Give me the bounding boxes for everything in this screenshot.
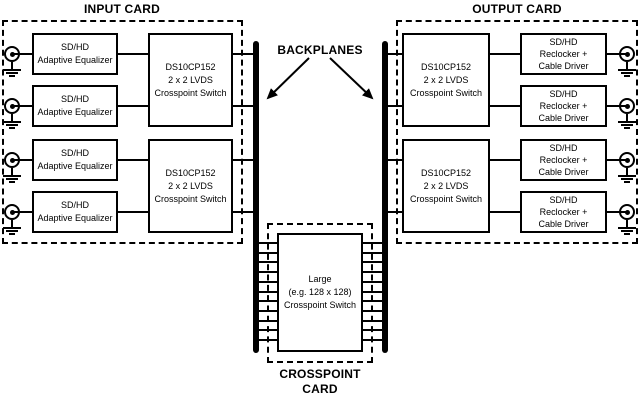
block-label-line: Adaptive Equalizer	[37, 106, 112, 119]
input-card-title: INPUT CARD	[84, 2, 160, 17]
bus-wire	[258, 339, 279, 341]
ground-bar	[621, 124, 633, 126]
bus-wire	[361, 261, 384, 263]
output-crosspoint-switch-block-1: DS10CP152 2 x 2 LVDS Crosspoint Switch	[402, 33, 490, 127]
wire	[18, 211, 34, 213]
ground-bar	[6, 178, 18, 180]
wire	[488, 53, 522, 55]
block-label-line: Crosspoint Switch	[154, 87, 226, 100]
wire	[605, 53, 620, 55]
block-label-line: Cable Driver	[538, 60, 588, 72]
wire	[18, 159, 34, 161]
ground-bar	[624, 75, 630, 77]
bus-wire	[361, 252, 384, 254]
backplanes-arrows	[252, 55, 392, 109]
ground-bar	[6, 230, 18, 232]
reclocker-cable-driver-block-3: SD/HD Reclocker + Cable Driver	[520, 139, 607, 181]
ground-stem	[626, 220, 628, 227]
block-label-line: Crosspoint Switch	[410, 193, 482, 206]
ground-icon	[618, 227, 636, 229]
ground-stem	[11, 168, 13, 175]
reclocker-cable-driver-block-4: SD/HD Reclocker + Cable Driver	[520, 191, 607, 233]
wire	[385, 105, 404, 107]
block-label-line: Adaptive Equalizer	[37, 160, 112, 173]
ground-icon	[3, 227, 21, 229]
bnc-jack-icon	[619, 152, 635, 168]
bus-wire	[258, 329, 279, 331]
wire	[116, 53, 150, 55]
block-label-line: SD/HD	[61, 41, 89, 54]
bus-wire	[258, 281, 279, 283]
block-label-line: Adaptive Equalizer	[37, 212, 112, 225]
ground-icon	[618, 121, 636, 123]
wire	[116, 211, 150, 213]
block-label-line: SD/HD	[61, 147, 89, 160]
wire	[385, 53, 404, 55]
block-label-line: 2 x 2 LVDS	[168, 74, 213, 87]
ground-icon	[618, 175, 636, 177]
ground-bar	[624, 233, 630, 235]
bus-wire	[361, 242, 384, 244]
crosspoint-card-label-line: CROSSPOINT	[279, 367, 360, 382]
ground-icon	[3, 69, 21, 71]
bus-wire	[258, 261, 279, 263]
crosspoint-card-label: CROSSPOINT CARD	[279, 367, 360, 397]
block-label-line: 2 x 2 LVDS	[424, 180, 469, 193]
reclocker-cable-driver-block-2: SD/HD Reclocker + Cable Driver	[520, 85, 607, 127]
block-label-line: SD/HD	[549, 88, 577, 100]
adaptive-equalizer-block-2: SD/HD Adaptive Equalizer	[32, 85, 118, 127]
bus-wire	[361, 271, 384, 273]
bus-wire	[258, 252, 279, 254]
block-label-line: SD/HD	[549, 142, 577, 154]
large-crosspoint-switch-block: Large (e.g. 128 x 128) Crosspoint Switch	[277, 233, 363, 352]
ground-icon	[3, 175, 21, 177]
ground-bar	[9, 181, 15, 183]
ground-bar	[9, 75, 15, 77]
block-label-line: Reclocker +	[540, 100, 588, 112]
block-label-line: DS10CP152	[421, 61, 471, 74]
bnc-input-connector-2	[4, 98, 20, 130]
adaptive-equalizer-block-4: SD/HD Adaptive Equalizer	[32, 191, 118, 233]
ground-bar	[6, 72, 18, 74]
ground-bar	[6, 124, 18, 126]
wire	[605, 211, 620, 213]
ground-stem	[626, 62, 628, 69]
input-crosspoint-switch-block-2: DS10CP152 2 x 2 LVDS Crosspoint Switch	[148, 139, 233, 233]
bnc-output-connector-4	[619, 204, 635, 236]
bus-wire	[361, 300, 384, 302]
bnc-input-connector-3	[4, 152, 20, 184]
wire	[488, 211, 522, 213]
bnc-input-connector-1	[4, 46, 20, 78]
bus-wire	[258, 310, 279, 312]
bus-wire	[361, 291, 384, 293]
bnc-output-connector-1	[619, 46, 635, 78]
block-label-line: SD/HD	[61, 93, 89, 106]
block-label-line: Large	[308, 273, 331, 286]
block-label-line: Reclocker +	[540, 154, 588, 166]
block-label-line: Crosspoint Switch	[410, 87, 482, 100]
bus-wire	[361, 320, 384, 322]
bnc-output-connector-2	[619, 98, 635, 130]
wire	[605, 105, 620, 107]
wire	[116, 105, 150, 107]
output-card-title: OUTPUT CARD	[472, 2, 562, 17]
bus-wire	[258, 320, 279, 322]
block-label-line: SD/HD	[61, 199, 89, 212]
block-label-line: Adaptive Equalizer	[37, 54, 112, 67]
bus-wire	[361, 329, 384, 331]
reclocker-cable-driver-block-1: SD/HD Reclocker + Cable Driver	[520, 33, 607, 75]
bus-wire	[258, 242, 279, 244]
block-label-line: 2 x 2 LVDS	[424, 74, 469, 87]
ground-bar	[621, 178, 633, 180]
block-label-line: Reclocker +	[540, 206, 588, 218]
ground-bar	[624, 181, 630, 183]
wire	[605, 159, 620, 161]
bus-wire	[361, 339, 384, 341]
arrow-to-right-backplane	[330, 58, 372, 98]
ground-bar	[9, 127, 15, 129]
ground-stem	[626, 168, 628, 175]
adaptive-equalizer-block-1: SD/HD Adaptive Equalizer	[32, 33, 118, 75]
block-label-line: 2 x 2 LVDS	[168, 180, 213, 193]
arrow-to-left-backplane	[268, 58, 309, 98]
ground-stem	[11, 62, 13, 69]
adaptive-equalizer-block-3: SD/HD Adaptive Equalizer	[32, 139, 118, 181]
block-diagram: INPUT CARD SD/HD Adaptive Equalizer SD/H…	[0, 0, 640, 402]
ground-bar	[9, 233, 15, 235]
wire	[385, 211, 404, 213]
wire	[488, 105, 522, 107]
block-label-line: SD/HD	[549, 194, 577, 206]
block-label-line: Cable Driver	[538, 218, 588, 230]
block-label-line: Cable Driver	[538, 112, 588, 124]
ground-bar	[621, 72, 633, 74]
block-label-line: Cable Driver	[538, 166, 588, 178]
ground-stem	[11, 220, 13, 227]
bus-wire	[361, 310, 384, 312]
bus-wire	[258, 300, 279, 302]
block-label-line: DS10CP152	[165, 61, 215, 74]
ground-stem	[11, 114, 13, 121]
bnc-input-connector-4	[4, 204, 20, 236]
bnc-jack-icon	[619, 204, 635, 220]
bnc-jack-icon	[619, 46, 635, 62]
ground-icon	[618, 69, 636, 71]
bnc-output-connector-3	[619, 152, 635, 184]
wire	[488, 159, 522, 161]
wire	[18, 105, 34, 107]
input-crosspoint-switch-block-1: DS10CP152 2 x 2 LVDS Crosspoint Switch	[148, 33, 233, 127]
block-label-line: Reclocker +	[540, 48, 588, 60]
block-label-line: DS10CP152	[165, 167, 215, 180]
bus-wire	[361, 281, 384, 283]
output-crosspoint-switch-block-2: DS10CP152 2 x 2 LVDS Crosspoint Switch	[402, 139, 490, 233]
ground-stem	[626, 114, 628, 121]
wire	[385, 159, 404, 161]
wire	[18, 53, 34, 55]
block-label-line: DS10CP152	[421, 167, 471, 180]
ground-bar	[621, 230, 633, 232]
block-label-line: SD/HD	[549, 36, 577, 48]
crosspoint-card-label-line: CARD	[279, 382, 360, 397]
block-label-line: Crosspoint Switch	[154, 193, 226, 206]
bnc-jack-icon	[619, 98, 635, 114]
block-label-line: Crosspoint Switch	[284, 299, 356, 312]
block-label-line: (e.g. 128 x 128)	[288, 286, 351, 299]
bus-wire	[258, 291, 279, 293]
ground-bar	[624, 127, 630, 129]
bus-wire	[258, 271, 279, 273]
ground-icon	[3, 121, 21, 123]
wire	[116, 159, 150, 161]
